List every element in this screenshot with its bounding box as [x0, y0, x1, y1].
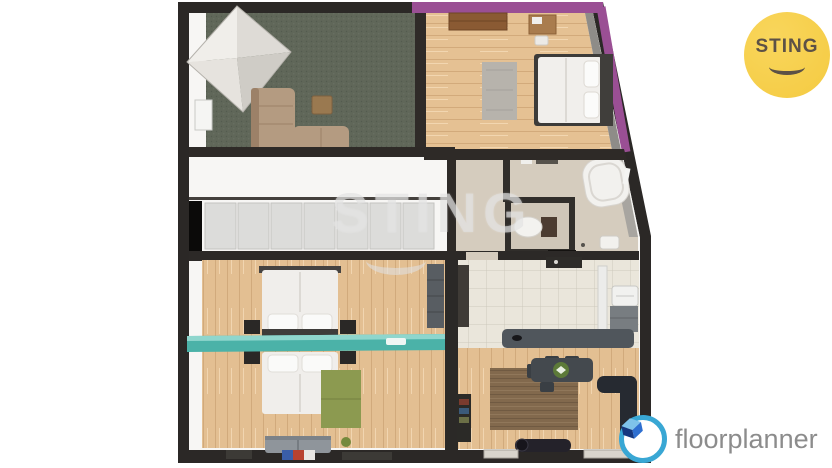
divider-panel: [598, 266, 607, 330]
entry-door-gap: [189, 201, 202, 251]
sting-logo-label: STING: [755, 36, 818, 58]
radiator: [342, 452, 392, 460]
teal-partition: [187, 334, 456, 352]
floorplanner-cube-icon: [619, 415, 667, 463]
bath-sink: [600, 236, 619, 249]
wall-living-bedroom: [415, 13, 426, 150]
nightstand: [244, 320, 260, 334]
floorplanner-logo: floorplanner: [619, 415, 818, 463]
cabinet: [610, 306, 638, 332]
wall-bottom-split: [445, 260, 458, 450]
room-bedrooms-left: [202, 260, 446, 460]
double-bed-middle: [259, 266, 341, 336]
room-living: [187, 6, 416, 152]
kitchen-counter: [502, 329, 634, 348]
toilet-tank: [541, 217, 557, 237]
sting-logo-badge: STING: [744, 12, 830, 98]
bookshelf: [457, 394, 471, 442]
wall-living-hall: [189, 147, 455, 157]
window-sill: [484, 450, 518, 458]
room-kitchen: [457, 257, 639, 458]
screenshot-stage: STING STING floorplanner: [0, 0, 832, 468]
door-gap-kitchen: [466, 252, 498, 260]
radiator: [226, 450, 252, 459]
double-bed-top: [534, 54, 613, 126]
nightstand: [340, 320, 356, 334]
floorplanner-label: floorplanner: [675, 424, 818, 455]
nightstand: [244, 351, 260, 364]
desk-chair: [535, 36, 548, 45]
rug-gray: [482, 62, 517, 120]
sting-watermark: STING: [322, 180, 542, 245]
wardrobe-tall: [427, 264, 444, 328]
room-bedroom-top: [426, 13, 621, 150]
purple-wall-top: [412, 2, 603, 13]
pouf: [341, 437, 351, 447]
sting-watermark-smile-icon: [366, 246, 426, 275]
nightstand: [340, 351, 356, 364]
open-door: [458, 265, 469, 327]
floor-mat: [282, 450, 315, 460]
side-table: [312, 96, 332, 114]
bench-dark: [515, 439, 571, 452]
sting-smile-icon: [769, 59, 805, 75]
wall-unit: [195, 100, 212, 130]
range-hood: [546, 257, 582, 268]
